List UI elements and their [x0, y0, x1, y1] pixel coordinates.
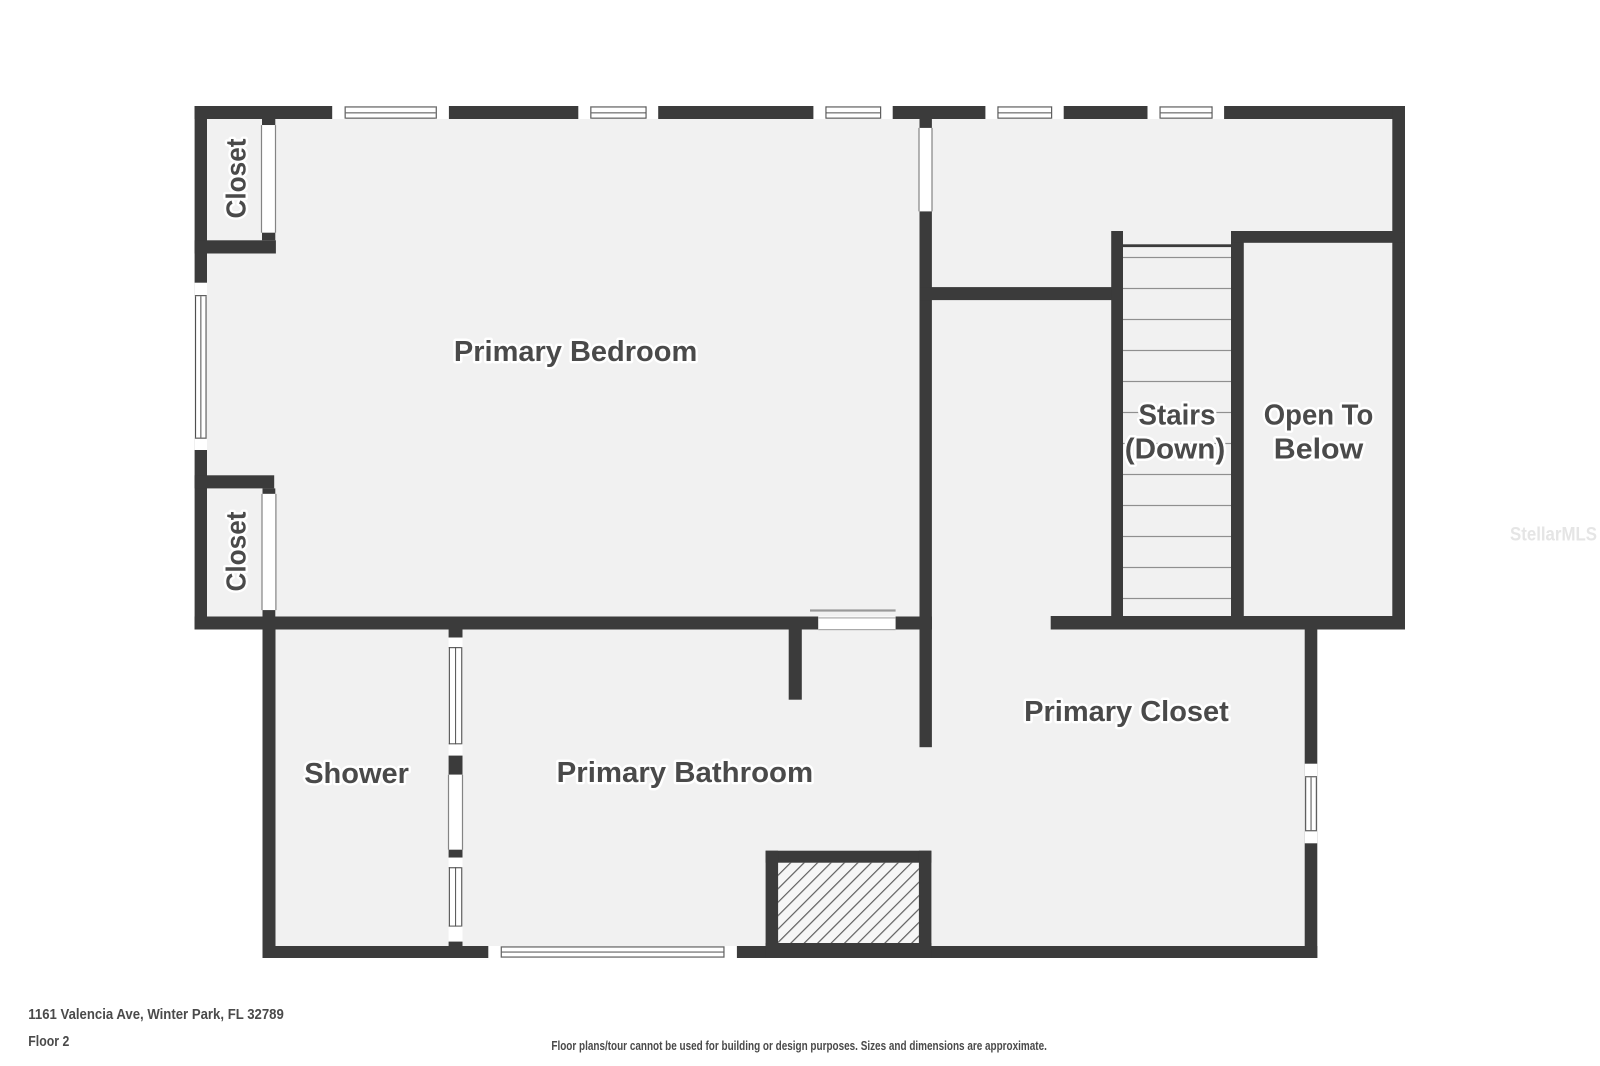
svg-text:Closet: Closet — [221, 139, 252, 219]
svg-text:(Down): (Down) — [1125, 434, 1226, 466]
svg-text:1161 Valencia Ave, Winter Park: 1161 Valencia Ave, Winter Park, FL 32789 — [28, 1006, 283, 1023]
svg-text:StellarMLS: StellarMLS — [1510, 525, 1597, 546]
svg-text:Primary Bedroom: Primary Bedroom — [454, 336, 697, 368]
svg-text:Floor 2: Floor 2 — [28, 1033, 69, 1050]
svg-text:Primary Bathroom: Primary Bathroom — [557, 757, 814, 789]
svg-text:Primary Closet: Primary Closet — [1024, 696, 1229, 728]
svg-text:Floor plans/tour cannot be use: Floor plans/tour cannot be used for buil… — [551, 1038, 1047, 1053]
svg-text:Shower: Shower — [304, 758, 409, 790]
svg-text:Stairs: Stairs — [1139, 400, 1216, 432]
svg-text:Open To: Open To — [1264, 400, 1374, 432]
svg-text:Closet: Closet — [221, 512, 252, 592]
svg-text:Below: Below — [1274, 434, 1364, 466]
